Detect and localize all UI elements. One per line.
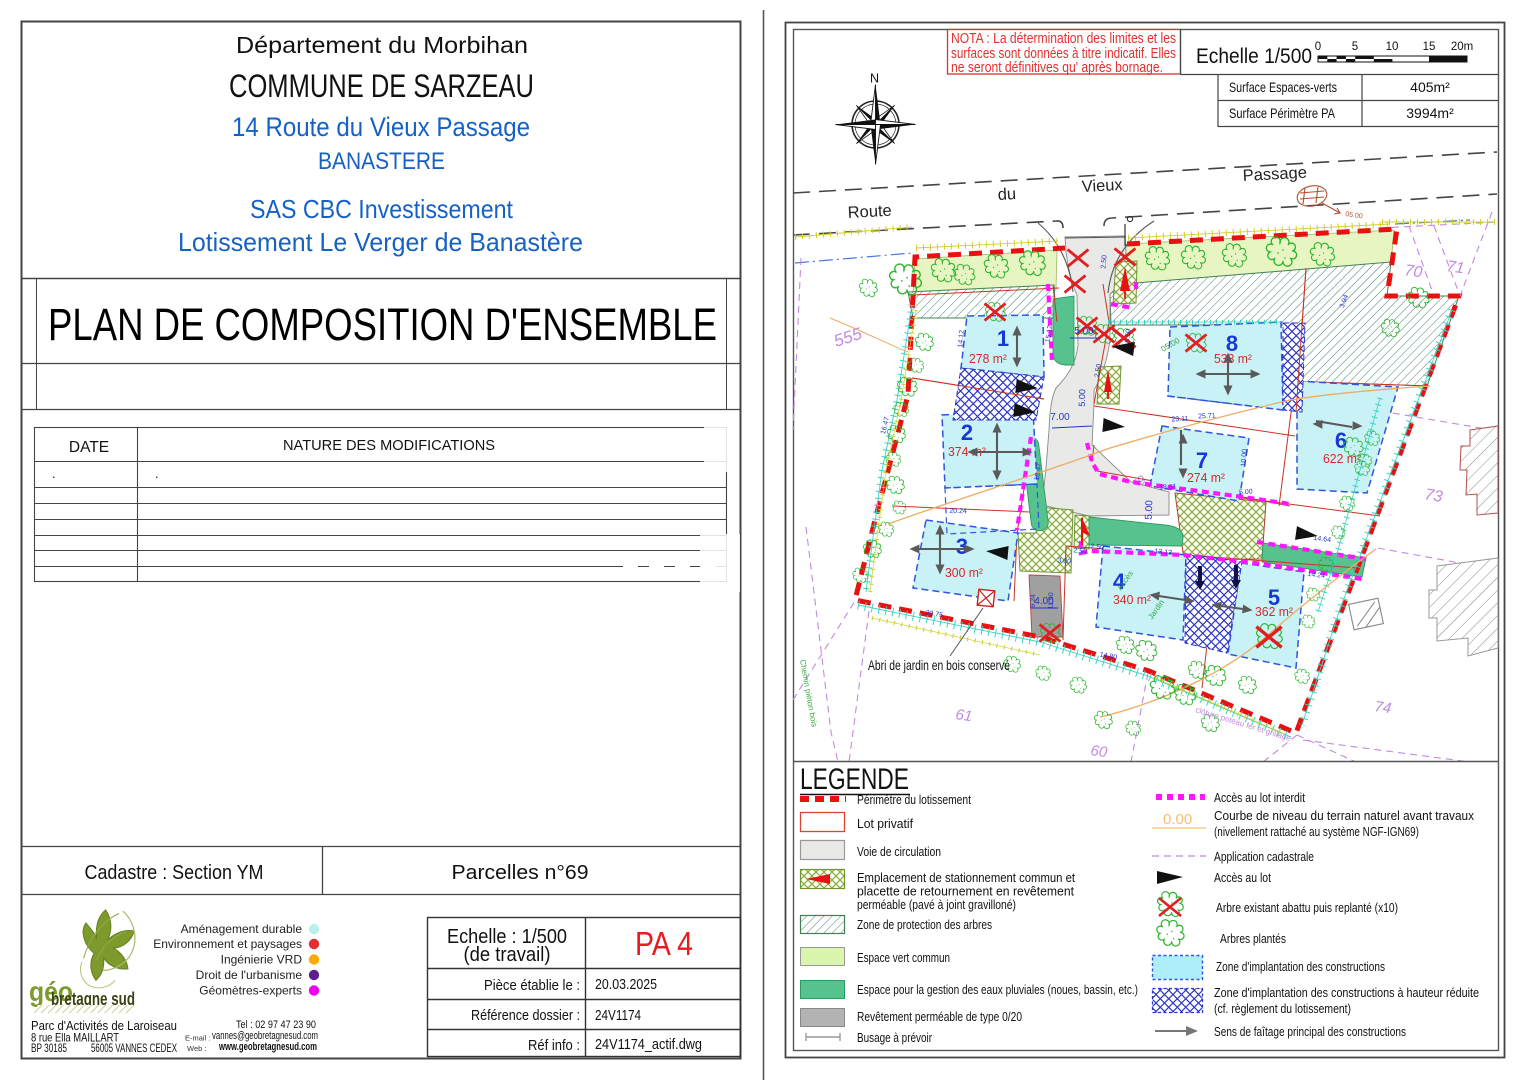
svg-text:Application cadastrale: Application cadastrale [1214,849,1314,864]
svg-text:3.00: 3.00 [1057,557,1071,565]
svg-text:Cadastre : Section YM: Cadastre : Section YM [85,862,264,884]
svg-text:Ingénierie VRD: Ingénierie VRD [221,953,303,967]
svg-text:PLAN DE COMPOSITION D'ENSEMBLE: PLAN DE COMPOSITION D'ENSEMBLE [48,299,717,350]
svg-text:Environnement et paysages: Environnement et paysages [153,937,302,951]
svg-text:Référence dossier :: Référence dossier : [471,1008,580,1024]
svg-text:Parcelles n°69: Parcelles n°69 [452,862,589,884]
svg-text:Lotissement Le Verger de Banas: Lotissement Le Verger de Banastère [178,227,583,257]
svg-text:5.00: 5.00 [1239,489,1253,497]
svg-text:Abri de jardin en bois conserv: Abri de jardin en bois conservé [868,657,1010,673]
svg-text:7.00: 7.00 [1050,412,1070,423]
svg-text:Voie de circulation: Voie de circulation [857,844,941,859]
svg-text:10: 10 [1386,41,1399,53]
svg-text:70: 70 [1403,262,1423,281]
svg-text:www.geobretagnesud.com: www.geobretagnesud.com [218,1041,317,1053]
svg-text:5: 5 [1352,41,1358,53]
svg-text:COMMUNE DE SARZEAU: COMMUNE DE SARZEAU [229,68,534,104]
svg-text:(cf. règlement du lotissement): (cf. règlement du lotissement) [1214,1001,1351,1016]
svg-text:E-mail :: E-mail : [185,1034,210,1043]
svg-text:Web :: Web : [187,1044,206,1053]
svg-text:0: 0 [1315,41,1321,53]
svg-text:Sens de faîtage principal des: Sens de faîtage principal des constructi… [1214,1024,1406,1039]
svg-text:Périmètre du lotissement: Périmètre du lotissement [857,792,971,807]
svg-text:14 Route du Vieux Passage: 14 Route du Vieux Passage [232,112,530,142]
svg-text:(nivellement rattaché au systè: (nivellement rattaché au système NGF-IGN… [1214,824,1419,839]
svg-text:Accès au lot: Accès au lot [1214,870,1271,885]
svg-text:2.50: 2.50 [1090,543,1104,551]
svg-text:2.50: 2.50 [1100,255,1108,269]
svg-text:perméable (pavé à joint gravil: perméable (pavé à joint gravilloné) [857,897,1016,912]
svg-text:.: . [155,466,159,481]
svg-text:Département du Morbihan: Département du Morbihan [236,32,528,58]
svg-text:Arbre existant abattu puis rep: Arbre existant abattu puis replanté (x10… [1216,900,1398,915]
svg-text:274 m²: 274 m² [1187,471,1225,485]
svg-text:Vieux: Vieux [1081,176,1124,196]
svg-text:61: 61 [954,706,973,725]
svg-text:Revêtement perméable de type 0: Revêtement perméable de type 0/20 [857,1009,1022,1024]
svg-text:340 m²: 340 m² [1113,593,1151,607]
svg-text:23.11: 23.11 [1171,416,1188,424]
svg-text:71: 71 [1445,258,1465,277]
svg-text:300 m²: 300 m² [945,566,983,580]
svg-text:Surface Périmètre PA: Surface Périmètre PA [1229,105,1336,121]
svg-text:Droit de l'urbanisme: Droit de l'urbanisme [196,968,303,982]
svg-text:BP 30185: BP 30185 [31,1041,67,1055]
svg-text:0.00: 0.00 [1163,811,1192,828]
svg-text:Passage: Passage [1242,164,1307,185]
svg-text:56005 VANNES CEDEX: 56005 VANNES CEDEX [91,1041,177,1055]
svg-text:24V1174_actif.dwg: 24V1174_actif.dwg [595,1037,702,1053]
svg-text:15: 15 [1423,41,1436,53]
svg-text:N: N [870,72,879,86]
svg-text:Espace vert commun: Espace vert commun [857,950,950,965]
svg-text:Géomètres-experts: Géomètres-experts [199,984,302,998]
svg-text:5.50: 5.50 [1124,329,1132,343]
svg-text:20.03.2025: 20.03.2025 [595,977,657,993]
svg-text:3994m²: 3994m² [1406,105,1454,121]
svg-text:Lot privatif: Lot privatif [857,816,913,831]
svg-text:362 m²: 362 m² [1255,605,1293,619]
svg-text:2.50: 2.50 [1073,547,1087,555]
svg-text:278 m²: 278 m² [969,352,1007,366]
svg-text:11.90: 11.90 [1048,592,1056,609]
svg-text:.: . [52,466,56,481]
svg-text:ne seront définitives qu' apr: ne seront définitives qu' après bornage. [951,60,1163,76]
svg-text:5.00: 5.00 [1074,326,1094,337]
svg-text:5.00: 5.00 [1077,389,1088,407]
svg-text:Arbres plantés: Arbres plantés [1220,931,1286,946]
svg-text:Aménagement durable: Aménagement durable [181,922,303,936]
svg-text:5.00: 5.00 [1144,500,1156,520]
svg-text:Surface Espaces-verts: Surface Espaces-verts [1229,79,1337,95]
svg-text:NOTA : La détermination des li: NOTA : La détermination des limites et l… [951,31,1176,47]
svg-text:(de travail): (de travail) [464,943,551,966]
svg-text:1: 1 [997,326,1009,351]
svg-text:PA 4: PA 4 [635,925,693,962]
svg-text:Pièce établie le :: Pièce établie le : [484,978,580,994]
svg-text:9.24: 9.24 [1030,594,1037,608]
svg-text:Busage à prévoir: Busage à prévoir [857,1030,933,1045]
svg-text:18.61: 18.61 [1159,483,1177,491]
svg-text:73: 73 [1423,486,1444,506]
svg-text:DATE: DATE [69,439,109,456]
svg-text:6: 6 [1335,428,1347,453]
svg-text:2: 2 [961,420,973,445]
svg-text:du: du [997,185,1016,204]
svg-text:60: 60 [1089,742,1109,761]
svg-text:Echelle 1/500: Echelle 1/500 [1196,44,1312,68]
svg-text:NATURE DES MODIFICATIONS: NATURE DES MODIFICATIONS [283,437,495,454]
svg-text:Accès au lot interdit: Accès au lot interdit [1214,790,1305,805]
svg-text:Zone de protection des arbres: Zone de protection des arbres [857,917,992,932]
svg-text:405m²: 405m² [1410,79,1450,95]
svg-text:BANASTERE: BANASTERE [318,148,445,175]
svg-text:Zone d'implantation des con: Zone d'implantation des constructions à … [1214,985,1479,1000]
svg-text:Réf info :: Réf info : [528,1038,580,1054]
svg-text:Zone d'implantation des constr: Zone d'implantation des constructions [1216,959,1385,974]
svg-text:24V1174: 24V1174 [595,1008,641,1024]
svg-text:20.24: 20.24 [949,508,967,516]
svg-text:533 m²: 533 m² [1214,352,1252,366]
svg-text:Espace pour la gestion des eau: Espace pour la gestion des eaux pluviale… [857,982,1138,997]
svg-text:20m: 20m [1451,41,1473,53]
svg-text:622 m²: 622 m² [1323,452,1361,466]
svg-text:74: 74 [1373,698,1392,717]
svg-text:25.71: 25.71 [1198,413,1216,421]
svg-text:7: 7 [1196,448,1208,473]
svg-text:Courbe de niveau du terrai: Courbe de niveau du terrain naturel avan… [1214,808,1474,823]
svg-text:SAS CBC Investissement: SAS CBC Investissement [250,194,514,224]
svg-text:Route: Route [847,202,892,222]
